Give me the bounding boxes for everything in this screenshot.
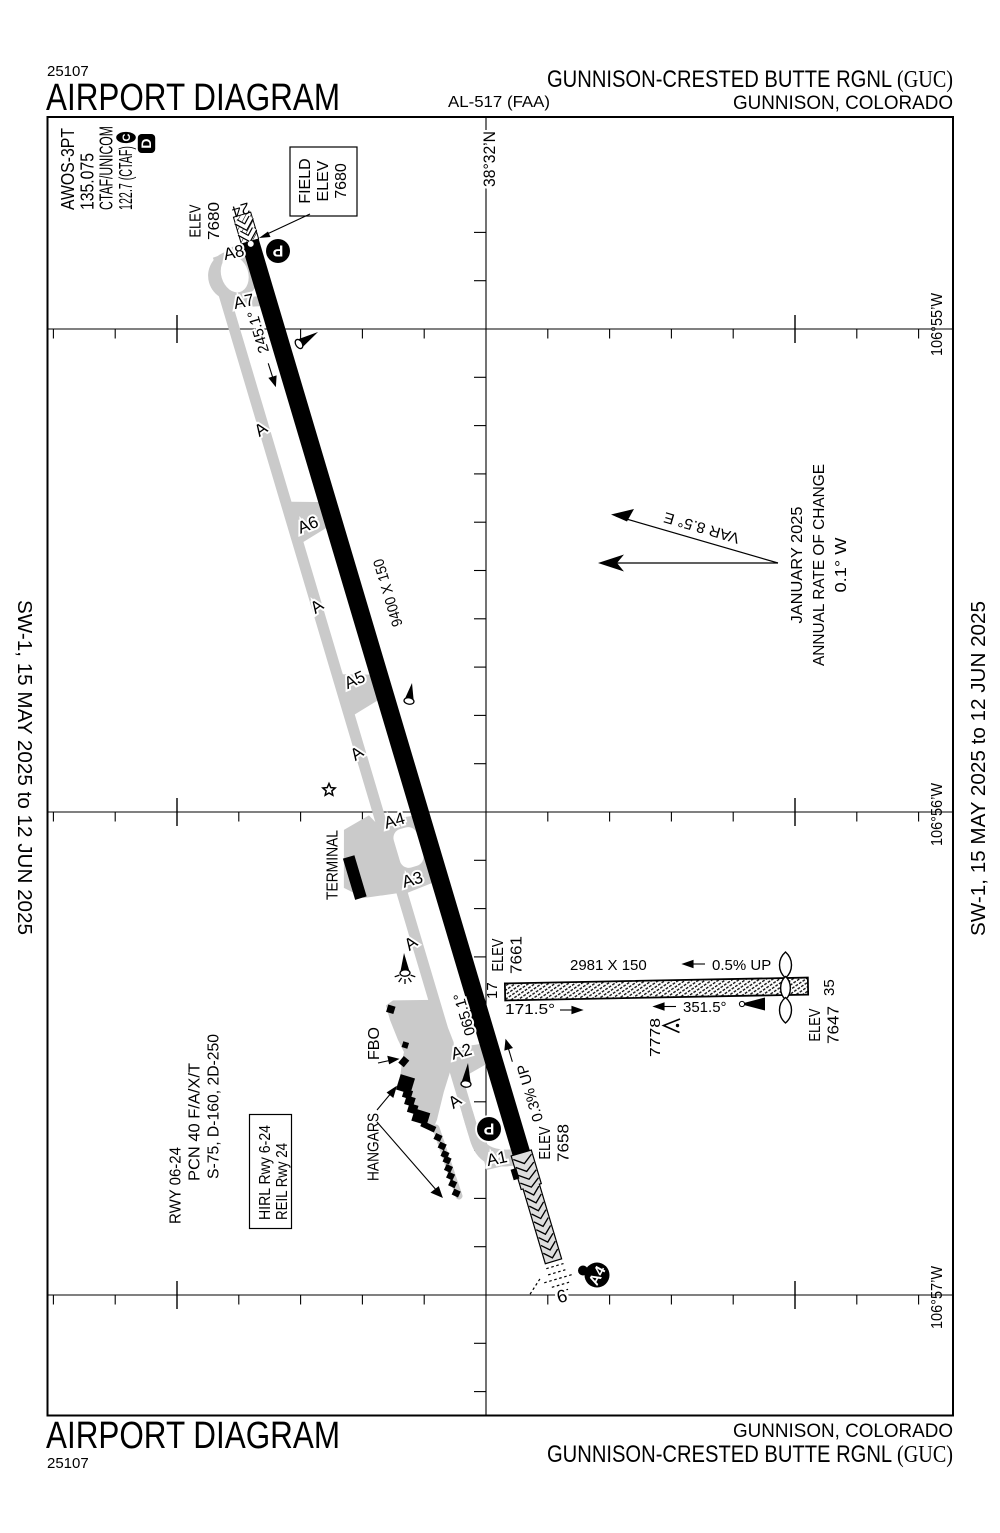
svg-text:P: P [272,242,283,259]
svg-text:17: 17 [484,982,501,999]
svg-text:135.075: 135.075 [78,153,98,210]
svg-text:7680: 7680 [206,202,223,240]
svg-text:ANNUAL RATE OF CHANGE: ANNUAL RATE OF CHANGE [811,464,828,666]
svg-text:GUNNISON-CRESTED BUTTE RGNL (G: GUNNISON-CRESTED BUTTE RGNL (GUC) [547,66,953,93]
svg-text:38°32’N: 38°32’N [480,131,499,187]
svg-text:GUNNISON, COLORADO: GUNNISON, COLORADO [733,1420,953,1442]
svg-text:GUNNISON-CRESTED BUTTE RGNL (G: GUNNISON-CRESTED BUTTE RGNL (GUC) [547,1441,953,1468]
svg-text:ELEV: ELEV [537,1126,554,1159]
svg-text:0.1° W: 0.1° W [833,536,850,592]
svg-text:HANGARS: HANGARS [366,1113,383,1181]
svg-text:171.5°: 171.5° [505,1001,555,1018]
svg-text:RWY 06-24: RWY 06-24 [168,1147,185,1224]
svg-text:TERMINAL: TERMINAL [325,830,342,900]
svg-text:REIL Rwy 24: REIL Rwy 24 [274,1143,291,1220]
svg-text:CTAF/UNICOM: CTAF/UNICOM [97,126,117,210]
svg-text:7647: 7647 [826,1006,843,1044]
svg-text:ELEV: ELEV [490,938,507,971]
svg-text:D: D [138,138,154,148]
svg-text:7680: 7680 [333,163,350,199]
svg-text:ELEV: ELEV [807,1008,824,1041]
svg-text:AIRPORT DIAGRAM: AIRPORT DIAGRAM [46,77,340,119]
svg-text:2981 X 150: 2981 X 150 [570,957,647,974]
svg-text:S-75, D-160, 2D-250: S-75, D-160, 2D-250 [206,1034,223,1179]
svg-text:PCN 40 F/A/X/T: PCN 40 F/A/X/T [187,1063,204,1181]
svg-text:ELEV: ELEV [188,204,205,237]
svg-text:25107: 25107 [47,1455,89,1472]
svg-text:AL-517 (FAA): AL-517 (FAA) [448,94,550,111]
svg-text:AIRPORT DIAGRAM: AIRPORT DIAGRAM [46,1415,340,1457]
svg-text:0.5% UP: 0.5% UP [712,957,771,974]
svg-text:P: P [483,1120,494,1137]
svg-text:7778: 7778 [647,1018,664,1057]
svg-text:SW-1, 15 MAY 2025 to 12 JUN: SW-1, 15 MAY 2025 to 12 JUN 2025 [968,601,990,936]
svg-text:GUNNISON, COLORADO: GUNNISON, COLORADO [733,92,953,114]
svg-text:C: C [121,133,133,141]
svg-text:106°57’W: 106°57’W [929,1265,946,1329]
svg-text:JANUARY 2025: JANUARY 2025 [789,506,806,623]
svg-text:7658: 7658 [556,1124,573,1162]
svg-text:351.5°: 351.5° [683,999,727,1016]
svg-text:AWOS-3PT: AWOS-3PT [58,128,78,210]
svg-text:FBO: FBO [366,1027,383,1060]
svg-text:106°56’W: 106°56’W [929,782,946,846]
svg-text:SW-1, 15 MAY 2025 to 12 JUN: SW-1, 15 MAY 2025 to 12 JUN 2025 [13,600,35,935]
svg-text:122.7 (CTAF): 122.7 (CTAF) [116,146,136,210]
svg-text:HIRL Rwy 6-24: HIRL Rwy 6-24 [257,1125,274,1220]
svg-text:106°55’W: 106°55’W [929,292,946,356]
svg-text:ELEV: ELEV [315,160,332,201]
svg-text:7661: 7661 [509,936,526,974]
svg-text:35: 35 [821,979,838,996]
svg-text:FIELD: FIELD [297,158,314,203]
